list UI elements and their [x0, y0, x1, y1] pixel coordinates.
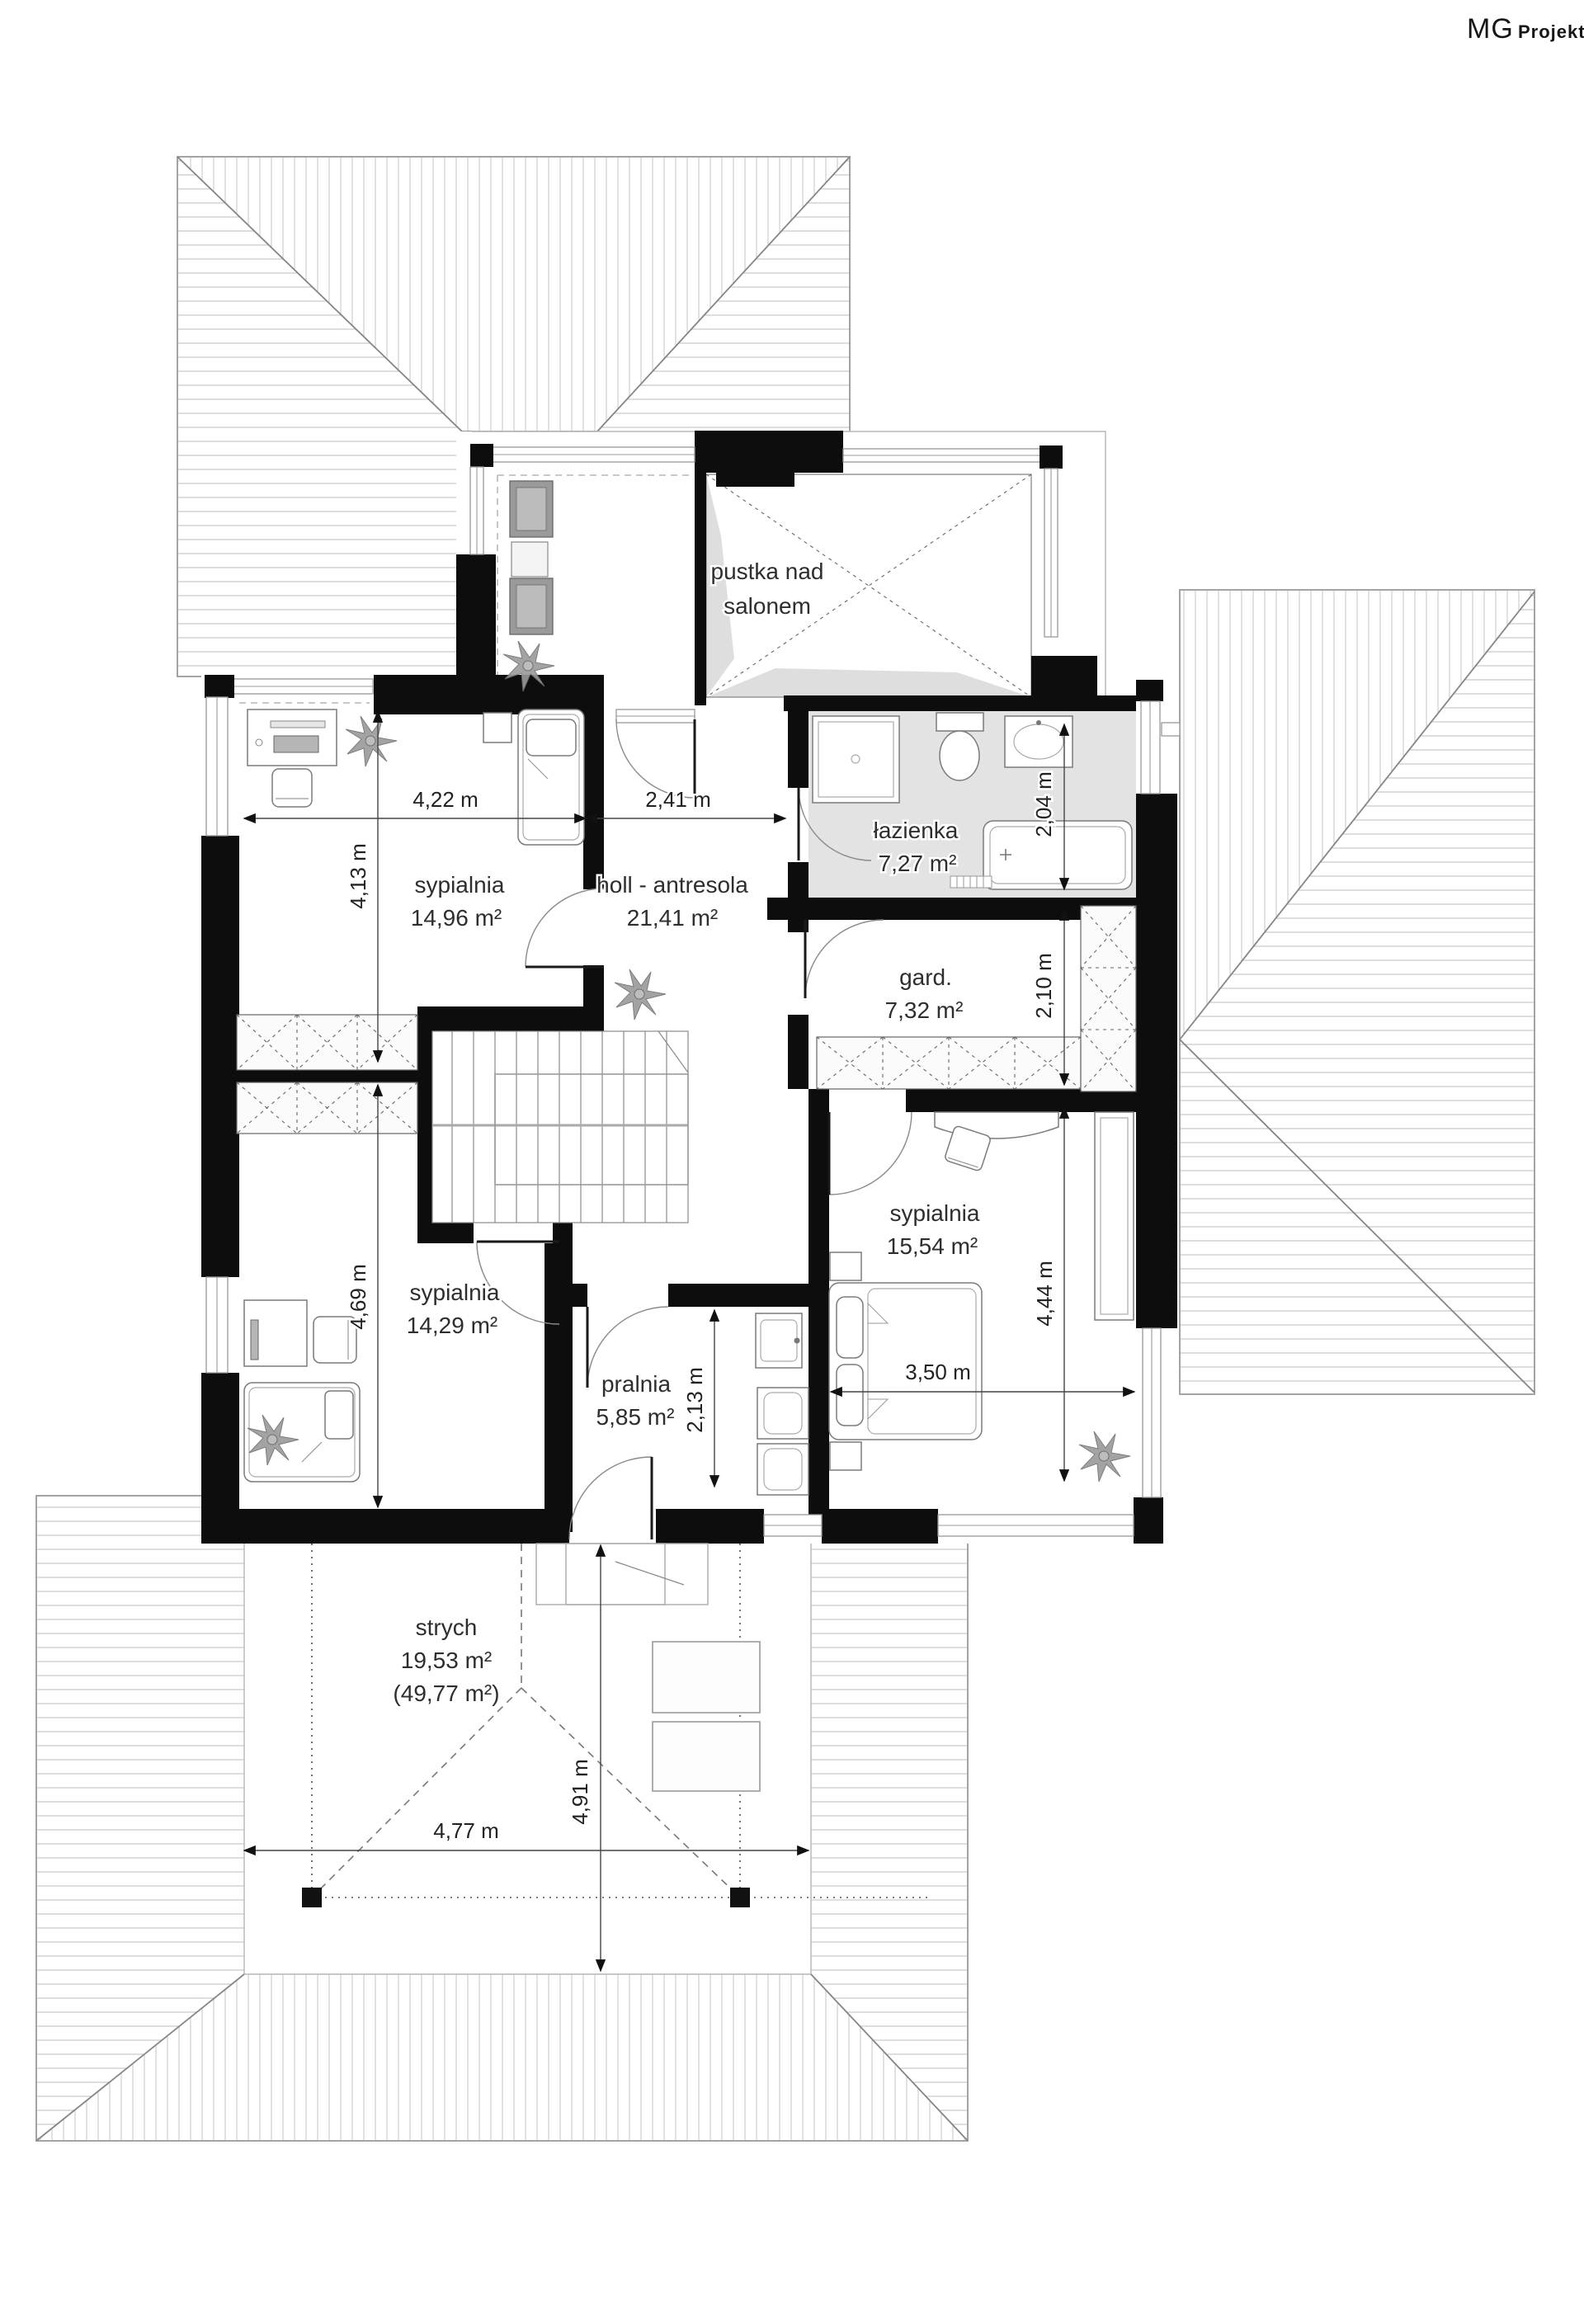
terrace-armchair-icon — [510, 481, 553, 537]
bathtub-icon — [983, 821, 1132, 889]
chimney-block — [695, 431, 843, 473]
terrace-table-icon — [511, 542, 548, 577]
laundry-sink-icon — [756, 1313, 802, 1368]
railing-east-balcony — [1162, 723, 1180, 736]
floor-plan-page: pustka nad salonem — [0, 0, 1584, 2324]
dim-label: 3,50 m — [905, 1360, 971, 1384]
label-strych: strych — [416, 1615, 478, 1640]
label-gard-area: 7,32 m² — [885, 997, 964, 1023]
sink-icon — [1005, 716, 1072, 767]
skylight-icon — [653, 1642, 760, 1713]
dim-label: 4,44 m — [1032, 1261, 1057, 1327]
chair-icon — [272, 769, 312, 807]
void-label-line2: salonem — [724, 593, 811, 619]
label-lazienka: łazienka — [874, 818, 959, 843]
floor-plan-canvas: pustka nad salonem — [0, 0, 1584, 2324]
label-sypialnia2: sypialnia — [890, 1200, 980, 1226]
roof-right — [1180, 590, 1534, 1394]
post-marker — [730, 1888, 750, 1907]
dim-label: 4,69 m — [346, 1264, 370, 1330]
dim-label: 4,77 m — [433, 1818, 499, 1843]
dim-label: 2,04 m — [1031, 771, 1056, 837]
wardrobe-strip-gard-right — [1081, 906, 1136, 1091]
roof-bottom — [36, 1496, 968, 2141]
staircase — [432, 1031, 688, 1223]
terrace-armchair-icon — [510, 578, 553, 634]
label-strych-area-total: (49,77 m²) — [393, 1681, 499, 1706]
railing-post — [470, 444, 493, 467]
label-lazienka-area: 7,27 m² — [879, 851, 957, 876]
label-pralnia-area: 5,85 m² — [596, 1404, 675, 1430]
washing-machine-icon — [757, 1444, 808, 1495]
label-sypialnia3-area: 14,29 m² — [407, 1313, 498, 1338]
shower-icon — [813, 716, 899, 803]
washing-machine-icon — [757, 1388, 808, 1439]
label-sypialnia1: sypialnia — [415, 872, 505, 898]
dim-label: 4,22 m — [412, 787, 478, 812]
logo-mg-text: MG — [1467, 13, 1514, 45]
desk-icon — [244, 1300, 307, 1366]
dim-label: 4,13 m — [346, 843, 370, 909]
wardrobe-icon — [1095, 1112, 1134, 1320]
label-holl: holl - antresola — [596, 872, 748, 898]
wardrobe-strip-bedroom1 — [237, 1015, 417, 1070]
label-strych-area: 19,53 m² — [401, 1648, 493, 1673]
desk-icon — [247, 709, 337, 766]
railing-post — [205, 675, 234, 698]
logo-projekt-text: Projekt — [1518, 21, 1584, 42]
wardrobe-strip-bedroom3 — [237, 1082, 417, 1134]
mg-projekt-logo: MG Projekt — [1467, 13, 1584, 45]
label-sypialnia1-area: 14,96 m² — [411, 905, 502, 931]
void-label-line1: pustka nad — [711, 559, 824, 584]
label-sypialnia2-area: 15,54 m² — [887, 1233, 978, 1259]
dim-strych-height: 4,91 m — [568, 1545, 601, 1971]
bed-icon — [518, 709, 584, 845]
nightstand-icon — [483, 713, 511, 742]
radiator-icon — [950, 876, 992, 888]
dim-label: 4,91 m — [568, 1759, 592, 1825]
attic-hatch-landing — [536, 1544, 708, 1605]
nightstand-icon — [830, 1252, 861, 1280]
railing-post — [1136, 680, 1163, 701]
railing-post — [1039, 445, 1063, 469]
post-marker — [302, 1888, 322, 1907]
label-holl-area: 21,41 m² — [627, 905, 719, 931]
wardrobe-strip-gard-bottom — [817, 1037, 1081, 1089]
dim-strych-width: 4,77 m — [244, 1818, 808, 1850]
dim-label: 2,41 m — [645, 787, 711, 812]
dim-label: 2,10 m — [1031, 953, 1056, 1019]
skylight-icon — [653, 1722, 760, 1791]
label-pralnia: pralnia — [601, 1371, 671, 1397]
dim-label: 2,13 m — [682, 1367, 707, 1433]
label-gard: gard. — [899, 964, 952, 990]
nightstand-icon — [830, 1442, 861, 1470]
label-sypialnia3: sypialnia — [410, 1280, 500, 1305]
